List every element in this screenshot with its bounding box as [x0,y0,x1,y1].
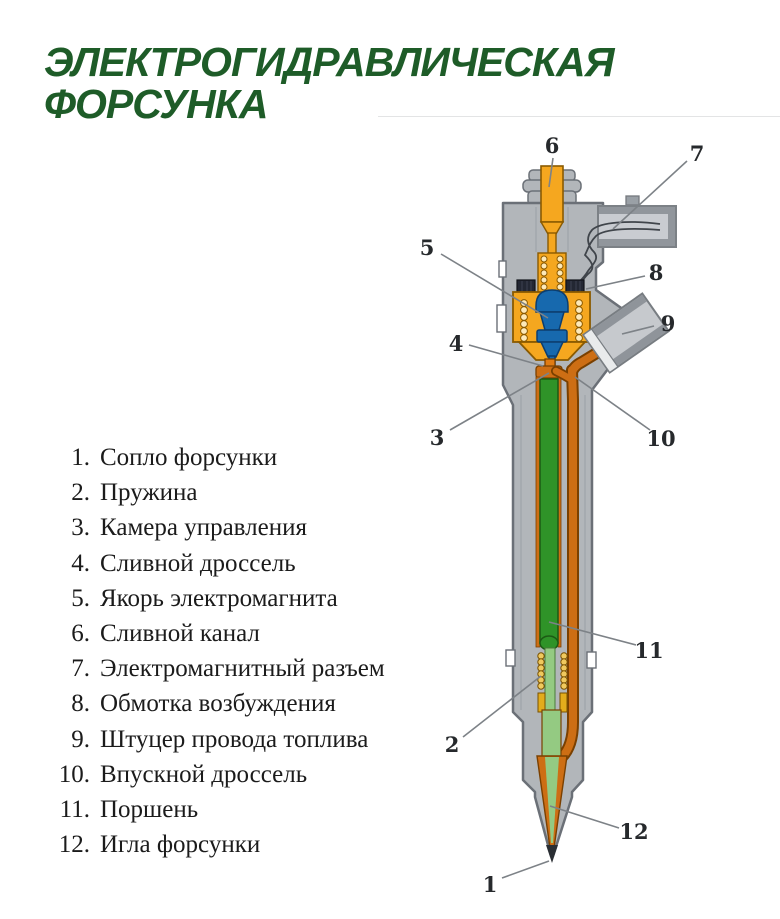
callout-4: 4 [449,331,464,356]
callout-8: 8 [649,260,664,285]
callout-3: 3 [430,425,445,450]
callout-6: 6 [545,133,560,158]
callout-9: 9 [661,311,676,336]
callout-11: 11 [634,638,663,663]
armature-spring [538,253,566,294]
callout-1: 1 [483,872,498,897]
injector-diagram: 6 7 8 5 9 4 3 10 11 2 12 1 [0,0,780,919]
callout-2: 2 [445,732,460,757]
callout-10: 10 [646,426,675,451]
callout-7: 7 [690,141,705,166]
callout-5: 5 [420,235,435,260]
nozzle-tip [546,845,558,863]
callout-12: 12 [619,819,648,844]
